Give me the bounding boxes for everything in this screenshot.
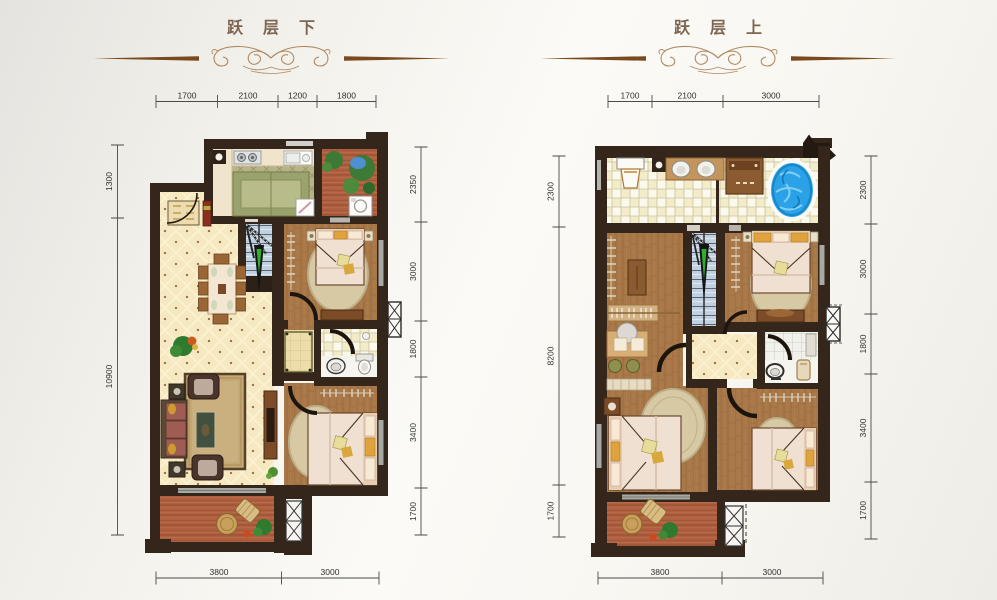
svg-text:3000: 3000 bbox=[408, 262, 418, 281]
svg-text:2300: 2300 bbox=[546, 182, 556, 201]
svg-text:2100: 2100 bbox=[678, 91, 697, 101]
svg-text:3000: 3000 bbox=[762, 91, 781, 101]
svg-text:1700: 1700 bbox=[546, 501, 556, 520]
svg-text:2300: 2300 bbox=[858, 180, 868, 199]
svg-text:3400: 3400 bbox=[408, 423, 418, 442]
svg-text:1300: 1300 bbox=[104, 172, 114, 191]
svg-text:1700: 1700 bbox=[621, 91, 640, 101]
svg-text:1800: 1800 bbox=[858, 334, 868, 353]
svg-text:3400: 3400 bbox=[858, 418, 868, 437]
svg-text:1700: 1700 bbox=[408, 502, 418, 521]
svg-text:3000: 3000 bbox=[763, 567, 782, 577]
svg-text:10900: 10900 bbox=[104, 364, 114, 388]
svg-text:3000: 3000 bbox=[858, 259, 868, 278]
svg-text:1800: 1800 bbox=[408, 339, 418, 358]
svg-text:3800: 3800 bbox=[210, 567, 229, 577]
svg-text:1200: 1200 bbox=[288, 91, 307, 101]
svg-text:8200: 8200 bbox=[546, 346, 556, 365]
svg-text:3000: 3000 bbox=[321, 567, 340, 577]
svg-text:1800: 1800 bbox=[337, 91, 356, 101]
svg-text:2350: 2350 bbox=[408, 175, 418, 194]
svg-text:3800: 3800 bbox=[651, 567, 670, 577]
svg-text:1700: 1700 bbox=[178, 91, 197, 101]
svg-text:1700: 1700 bbox=[858, 501, 868, 520]
svg-text:2100: 2100 bbox=[239, 91, 258, 101]
